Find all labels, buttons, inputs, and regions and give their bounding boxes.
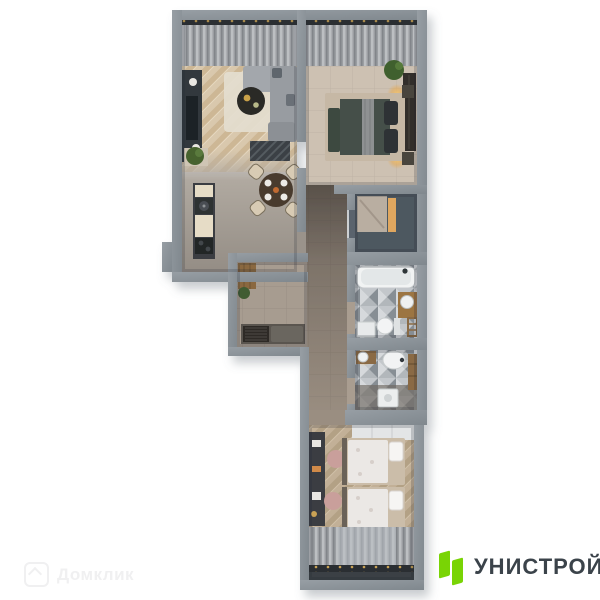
nightstand bbox=[402, 152, 414, 165]
burner bbox=[199, 241, 204, 246]
room-bedroom bbox=[306, 20, 417, 185]
armchair bbox=[268, 122, 295, 142]
plate bbox=[281, 180, 288, 187]
screenshot-stage: Домклик УНИСТРОЙ bbox=[0, 0, 600, 600]
bath2-door-gap bbox=[347, 378, 355, 404]
closet-lighted-wardrobe bbox=[388, 198, 396, 232]
bed-pillow bbox=[389, 491, 403, 510]
partition-screen bbox=[250, 141, 290, 161]
house-icon bbox=[24, 562, 49, 587]
bed-duvet bbox=[348, 440, 388, 483]
bath1-sink bbox=[401, 296, 414, 309]
bed-footboard bbox=[342, 438, 347, 485]
logo-text: УНИСТРОЙ bbox=[474, 556, 600, 578]
logo-green-bar bbox=[452, 557, 463, 585]
toilet-flush bbox=[400, 358, 404, 362]
watermark: Домклик bbox=[24, 562, 134, 587]
vase-decor bbox=[189, 78, 197, 86]
room-closet bbox=[349, 194, 417, 252]
wall-kids-left bbox=[300, 347, 309, 590]
wall-bath2-left bbox=[347, 350, 355, 378]
bath1-door-gap bbox=[347, 302, 355, 334]
desk-decor bbox=[312, 466, 321, 472]
burner bbox=[206, 247, 211, 252]
toilet-tank bbox=[394, 318, 400, 335]
sofa-pillow bbox=[272, 68, 282, 78]
desk-decor bbox=[312, 440, 321, 447]
coffee-table bbox=[237, 87, 265, 115]
closet-door-gap bbox=[349, 208, 355, 238]
duvet-pattern bbox=[369, 508, 373, 512]
counter-top bbox=[195, 185, 213, 197]
plate bbox=[281, 194, 288, 201]
counter-top bbox=[195, 215, 213, 237]
developer-logo: УНИСТРОЙ bbox=[437, 546, 587, 588]
wall-bath1-left bbox=[347, 265, 355, 302]
bed-duvet bbox=[348, 489, 388, 530]
bath-faucet bbox=[402, 268, 407, 273]
bed-footboard bbox=[342, 487, 347, 532]
logo-green-bar bbox=[439, 550, 450, 578]
bed-runner bbox=[362, 99, 374, 155]
table-decor bbox=[244, 95, 251, 102]
corridor-tiles bbox=[306, 185, 347, 418]
living-curtains bbox=[182, 20, 297, 66]
duvet-pattern bbox=[357, 520, 361, 524]
bed-pillow bbox=[384, 101, 398, 125]
sink-drain bbox=[203, 205, 206, 208]
bed-pillow bbox=[384, 129, 398, 153]
room-kids bbox=[309, 425, 414, 580]
stove bbox=[195, 238, 213, 254]
wall-living-bedroom bbox=[297, 10, 306, 142]
kids-curtain-rod bbox=[309, 565, 414, 572]
wall-kids-top bbox=[345, 410, 427, 425]
plant-leaf bbox=[195, 149, 203, 157]
wall-closet-bottom bbox=[347, 252, 427, 265]
sheer-curtain bbox=[338, 527, 396, 567]
bedroom-curtains bbox=[306, 20, 417, 66]
logo-mark-icon bbox=[437, 549, 467, 585]
nightstand bbox=[402, 85, 414, 98]
duvet-pattern bbox=[356, 448, 360, 452]
wall-kids-bottom bbox=[300, 580, 424, 590]
washer-door bbox=[384, 394, 392, 402]
wall-closet-left bbox=[347, 194, 355, 210]
desk-decor bbox=[312, 492, 321, 500]
corridor bbox=[306, 185, 347, 425]
duvet-pattern bbox=[356, 496, 360, 500]
centerpiece bbox=[273, 187, 279, 193]
bath2-sink bbox=[358, 352, 368, 362]
kids-door-threshold bbox=[309, 410, 345, 425]
wall-hall-bottom bbox=[228, 347, 309, 356]
tv bbox=[186, 96, 198, 140]
duvet-pattern bbox=[358, 472, 362, 476]
duvet-pattern bbox=[370, 460, 374, 464]
bench-cushion bbox=[271, 326, 303, 342]
plant-leaf bbox=[395, 62, 403, 70]
wall-bath-divider bbox=[347, 338, 427, 350]
wall-outer-left bbox=[172, 10, 182, 272]
table-decor bbox=[253, 102, 259, 108]
bath1-cabinet bbox=[357, 322, 375, 337]
plate bbox=[265, 194, 272, 201]
wall-living-corridor bbox=[297, 168, 306, 232]
toilet-bowl bbox=[377, 318, 393, 334]
plate bbox=[265, 180, 272, 187]
sofa-pillow bbox=[286, 94, 295, 106]
apartment bbox=[162, 10, 427, 590]
wall-outer-right bbox=[417, 10, 427, 260]
bed-bench bbox=[328, 108, 340, 152]
watermark-text: Домклик bbox=[57, 565, 134, 585]
wall-closet-left bbox=[347, 238, 355, 252]
wall-left-step bbox=[162, 242, 172, 272]
kids-chair bbox=[324, 492, 342, 510]
bed-pillow bbox=[389, 442, 403, 461]
wall-bedroom-bottom bbox=[334, 185, 427, 194]
room-living-kitchen bbox=[182, 20, 307, 272]
wall-hall-left bbox=[228, 253, 237, 356]
wall-outer-right-kids bbox=[414, 417, 424, 590]
floorplan-render bbox=[0, 0, 600, 600]
